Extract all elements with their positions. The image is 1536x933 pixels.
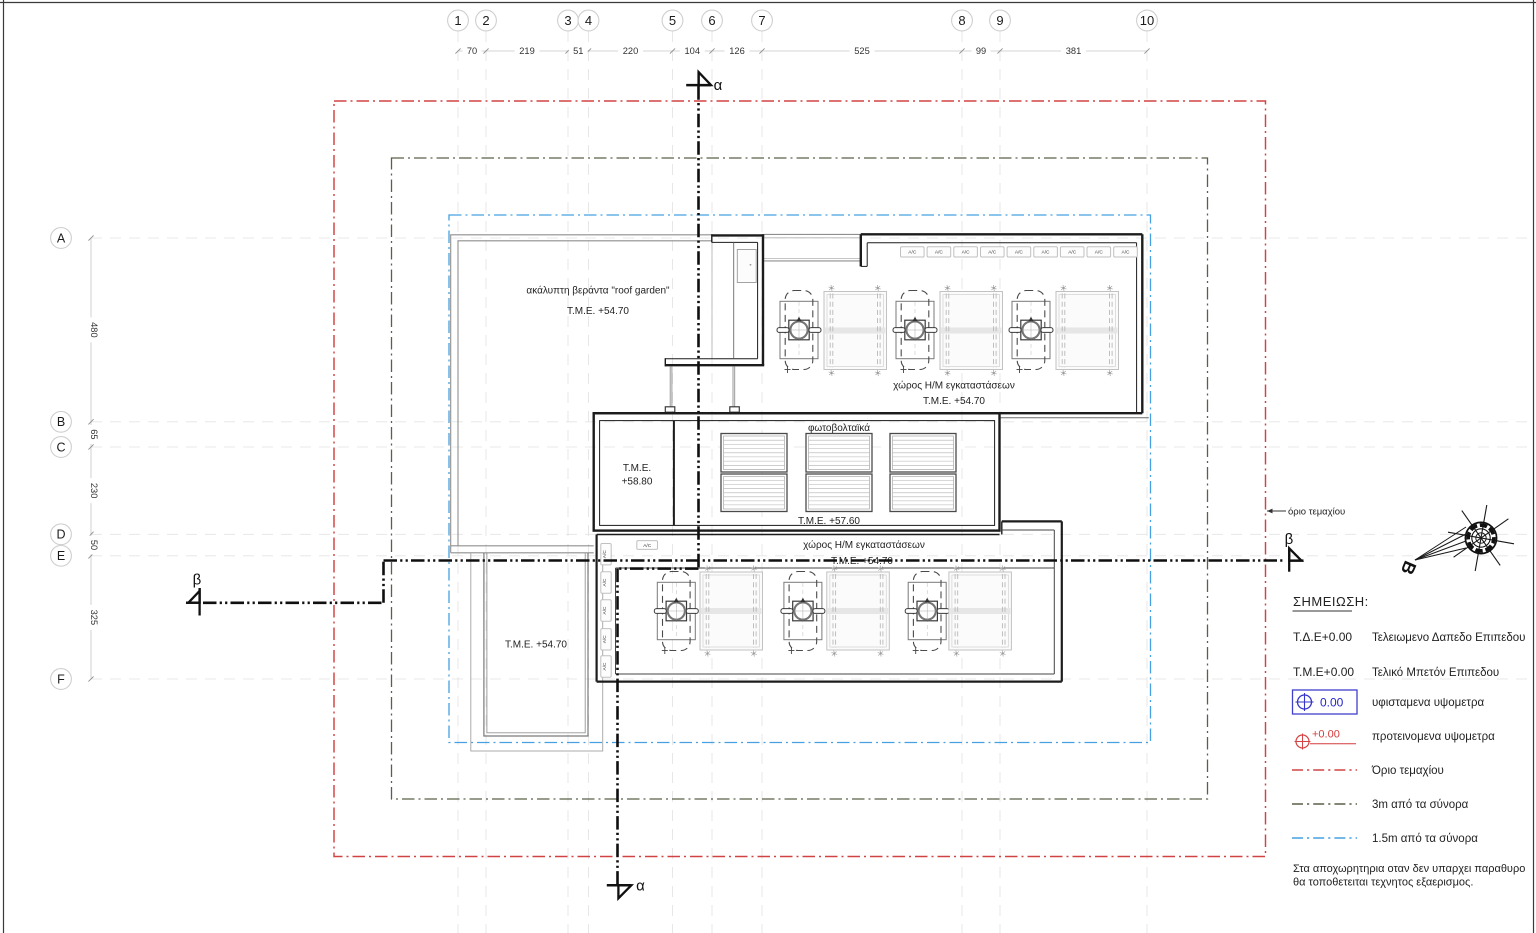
svg-text:51: 51 — [573, 46, 583, 56]
svg-text:381: 381 — [1066, 46, 1082, 56]
svg-text:Τελειωμενο Δαπεδο Επιπεδου: Τελειωμενο Δαπεδο Επιπεδου — [1372, 632, 1525, 644]
svg-text:ΣΗΜΕΙΩΣΗ:: ΣΗΜΕΙΩΣΗ: — [1293, 594, 1369, 609]
svg-text:α: α — [714, 77, 723, 94]
svg-text:2: 2 — [482, 13, 489, 28]
svg-text:όριο τεμαχίου: όριο τεμαχίου — [1288, 506, 1345, 517]
svg-text:E: E — [57, 549, 65, 563]
svg-text:θα τοποθετειται τεχνητος εξαερ: θα τοποθετειται τεχνητος εξαερισμος. — [1293, 877, 1473, 889]
svg-text:ακάλυπτη βεράντα "roof garden": ακάλυπτη βεράντα "roof garden" — [526, 285, 670, 297]
svg-text:A/C: A/C — [908, 250, 917, 256]
svg-text:B: B — [57, 415, 65, 429]
svg-text:1: 1 — [454, 13, 461, 28]
svg-text:A/C: A/C — [643, 543, 652, 549]
svg-text:T.M.E. +57.60: T.M.E. +57.60 — [798, 516, 860, 527]
svg-text:220: 220 — [623, 46, 639, 56]
svg-text:3m από τα σύνορα: 3m από τα σύνορα — [1372, 799, 1469, 811]
svg-text:6: 6 — [708, 13, 715, 28]
svg-text:Τ.Δ.Ε+0.00: Τ.Δ.Ε+0.00 — [1293, 630, 1352, 644]
svg-text:230: 230 — [89, 483, 99, 499]
svg-text:D: D — [56, 528, 65, 542]
svg-text:1.5m από τα σύνορα: 1.5m από τα σύνορα — [1372, 833, 1478, 845]
svg-text:T.M.E. +54.70: T.M.E. +54.70 — [567, 306, 629, 317]
svg-text:480: 480 — [89, 322, 99, 338]
svg-text:T.M.E. +54.70: T.M.E. +54.70 — [923, 396, 985, 407]
svg-text:χώρος Η/Μ εγκαταστάσεων: χώρος Η/Μ εγκαταστάσεων — [803, 539, 925, 551]
svg-text:A/C: A/C — [988, 250, 997, 256]
svg-text:8: 8 — [958, 13, 965, 28]
svg-text:A/C: A/C — [1068, 250, 1077, 256]
svg-text:φωτοβολταϊκά: φωτοβολταϊκά — [808, 422, 870, 434]
svg-text:A/C: A/C — [602, 550, 608, 559]
svg-text:Όριο τεμαχίου: Όριο τεμαχίου — [1371, 765, 1444, 777]
svg-text:F: F — [57, 672, 65, 686]
svg-text:10: 10 — [1140, 13, 1154, 28]
svg-text:219: 219 — [519, 46, 535, 56]
svg-text:A/C: A/C — [1095, 250, 1104, 256]
svg-text:A/C: A/C — [602, 635, 608, 644]
svg-text:προτεινομενα υψομετρα: προτεινομενα υψομετρα — [1372, 731, 1495, 743]
svg-text:A/C: A/C — [962, 250, 971, 256]
svg-text:A/C: A/C — [1015, 250, 1024, 256]
svg-text:A/C: A/C — [602, 662, 608, 671]
svg-text:Τελικό Μπετόν Επιπεδου: Τελικό Μπετόν Επιπεδου — [1372, 667, 1499, 679]
svg-text:A/C: A/C — [1042, 250, 1051, 256]
svg-text:+0.00: +0.00 — [1312, 729, 1340, 741]
svg-text:0.00: 0.00 — [1320, 696, 1344, 710]
svg-text:+58.80: +58.80 — [622, 477, 653, 488]
svg-text:β: β — [193, 572, 202, 589]
svg-text:9: 9 — [996, 13, 1003, 28]
svg-text:126: 126 — [729, 46, 745, 56]
svg-text:65: 65 — [89, 429, 99, 439]
svg-text:Στα αποχωρητηρια οταν δεν υπαρ: Στα αποχωρητηρια οταν δεν υπαρχει παραθυ… — [1293, 863, 1525, 875]
svg-text:α: α — [636, 878, 645, 895]
svg-text:A: A — [57, 231, 66, 245]
svg-text:υφισταμενα υψομετρα: υφισταμενα υψομετρα — [1372, 697, 1484, 709]
svg-text:Τ.Μ.Ε+0.00: Τ.Μ.Ε+0.00 — [1293, 665, 1354, 679]
svg-text:A/C: A/C — [602, 606, 608, 615]
svg-text:325: 325 — [89, 610, 99, 626]
svg-text:5: 5 — [669, 13, 676, 28]
svg-text:χώρος Η/Μ εγκαταστάσεων: χώρος Η/Μ εγκαταστάσεων — [893, 380, 1015, 392]
svg-text:A/C: A/C — [602, 578, 608, 587]
svg-text:β: β — [1285, 531, 1294, 548]
svg-text:50: 50 — [89, 540, 99, 550]
svg-text:99: 99 — [976, 46, 986, 56]
svg-text:104: 104 — [684, 46, 700, 56]
svg-text:T.M.E. +54.70: T.M.E. +54.70 — [505, 640, 567, 651]
svg-text:T.M.E.: T.M.E. — [623, 463, 651, 474]
svg-text:4: 4 — [585, 13, 592, 28]
svg-text:7: 7 — [758, 13, 765, 28]
svg-text:A/C: A/C — [935, 250, 944, 256]
svg-text:C: C — [56, 440, 65, 454]
svg-text:525: 525 — [854, 46, 870, 56]
svg-text:3: 3 — [564, 13, 571, 28]
svg-text:A/C: A/C — [1122, 250, 1131, 256]
svg-text:70: 70 — [467, 46, 477, 56]
